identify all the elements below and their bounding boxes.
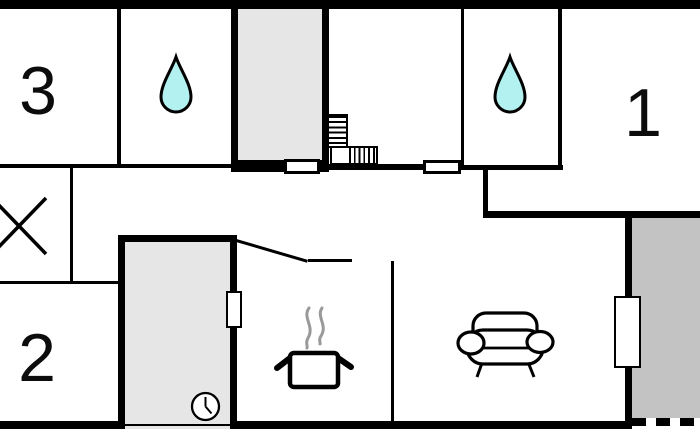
bedroom-1-label: 1	[611, 79, 675, 147]
wall-bathroom-right-bottom	[460, 165, 563, 170]
wall-stair-room-bathroom-divider	[461, 9, 464, 169]
wall-outer-top	[0, 0, 700, 9]
cooking-pot-icon	[270, 300, 356, 392]
water-drop-icon	[492, 54, 528, 116]
kitchen-door-swing-line	[232, 238, 308, 263]
bedroom-2-label: 2	[5, 324, 69, 392]
wall-outer-bottom-middle	[235, 421, 632, 429]
bedroom-3-label: 3	[6, 57, 70, 125]
hallway-door	[284, 159, 320, 174]
wall-hallway-left	[231, 9, 238, 172]
wall-kitchen-living-divider	[391, 261, 394, 421]
wall-entry-left	[118, 235, 125, 429]
wall-bedroom1-left	[558, 9, 562, 169]
entry-kitchen-door	[226, 291, 242, 328]
window-cross-icon	[0, 194, 48, 258]
clock-icon	[189, 390, 222, 423]
wall-outer-bottom-left	[0, 421, 118, 429]
sofa-icon	[450, 303, 560, 381]
stair-room-door	[423, 160, 461, 174]
terrace-door	[614, 296, 641, 368]
wall-kitchen-top-segment	[308, 259, 352, 262]
terrace-boundary-dashed-line	[632, 418, 700, 426]
wall-upper-rooms-bottom	[0, 164, 232, 168]
wall-entry-right	[230, 235, 237, 429]
steam-icon	[320, 308, 324, 344]
wall-bedroom3-bathroom-divider	[117, 9, 121, 168]
water-drop-icon	[158, 54, 194, 116]
wall-bedroom1-notch-left	[483, 168, 488, 216]
entry-threshold-line	[125, 424, 230, 426]
stairs-icon	[327, 114, 348, 148]
stairs-icon	[330, 146, 378, 165]
wall-bedroom2-top	[0, 281, 121, 284]
steam-icon	[307, 308, 311, 348]
upper-hallway-floor	[238, 9, 322, 162]
wall-entry-top	[118, 235, 237, 242]
wall-living-room-top	[483, 211, 700, 218]
terrace-floor	[632, 218, 700, 418]
stair-treads	[349, 148, 376, 163]
wall-storage-room-right	[70, 168, 73, 284]
floor-plan: 3 1 2	[0, 0, 700, 429]
